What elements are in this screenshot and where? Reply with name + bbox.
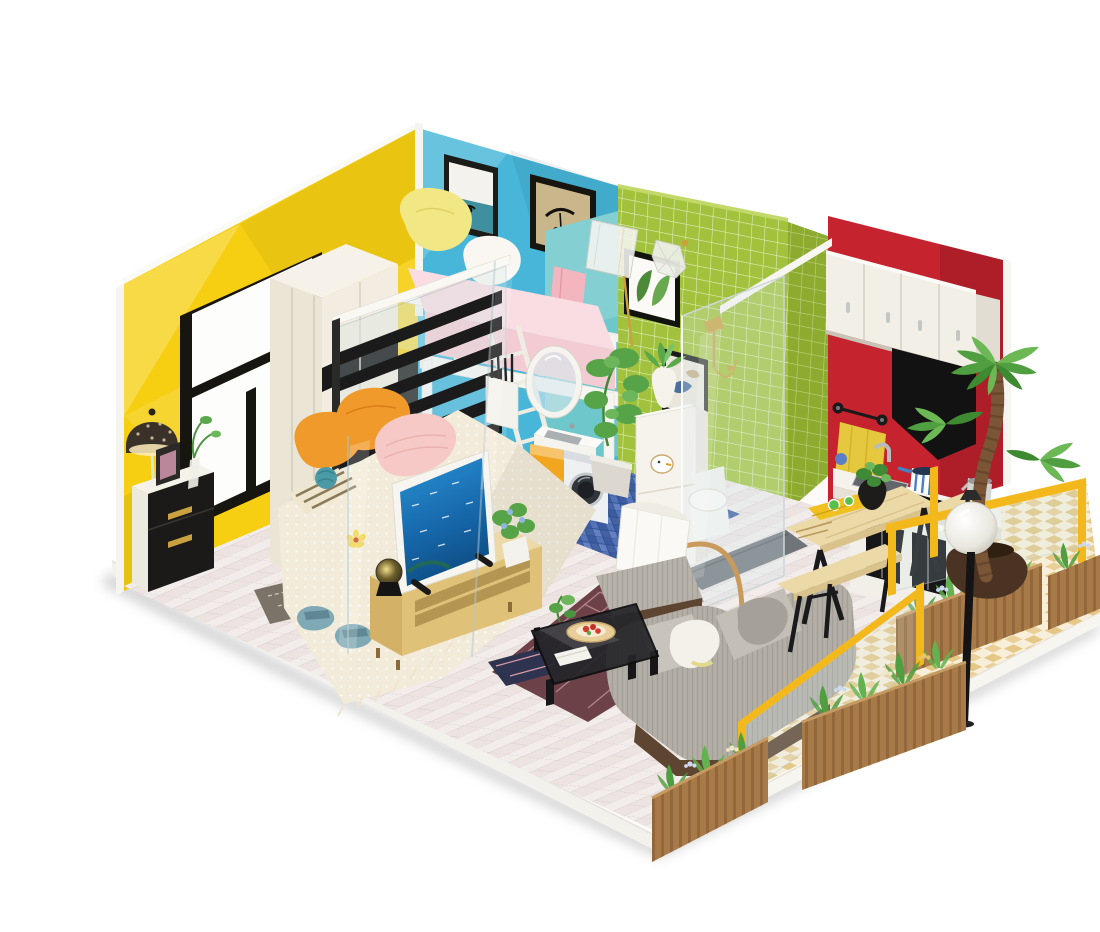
- snack-plate: [567, 622, 615, 642]
- dollhouse-product-photo: [40, 16, 1100, 916]
- globe-table-lamp: [376, 559, 402, 596]
- dollhouse-illustration: [40, 16, 1100, 916]
